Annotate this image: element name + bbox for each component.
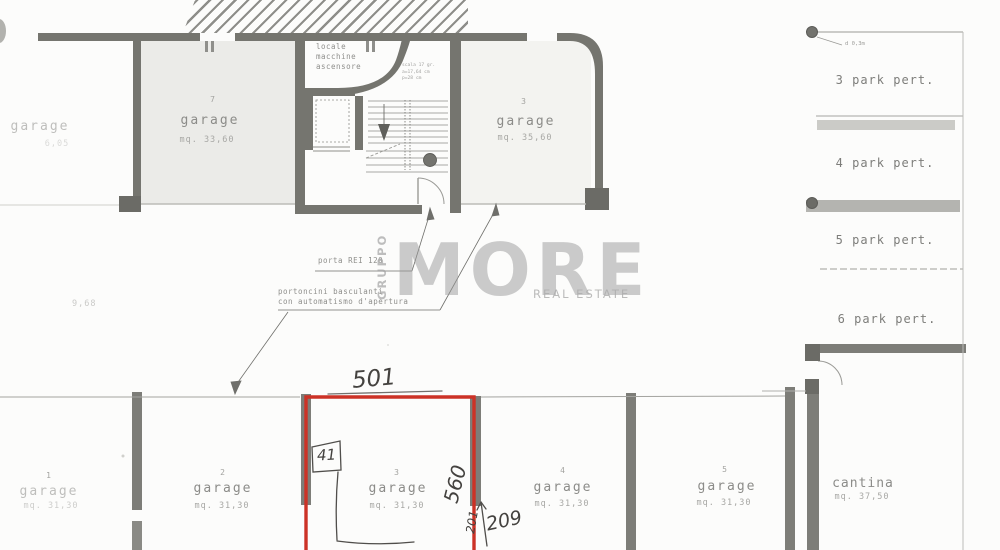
- garage-7-number: 7: [210, 95, 216, 104]
- garage-left-fragment-label: garage: [11, 119, 70, 134]
- garage-thresholds: [0, 204, 586, 205]
- park-slot-6: 6 park pert.: [838, 312, 937, 326]
- garage-5-number: 5: [722, 465, 728, 474]
- garage-7-label: garage: [181, 113, 240, 128]
- arrowhead: [427, 208, 434, 220]
- door-arc-cantina: [818, 361, 842, 385]
- handwriting-41: 41: [317, 446, 337, 465]
- garage-3-upper-number: 3: [521, 97, 527, 106]
- garage-4-label: garage: [534, 480, 593, 495]
- garage-3-number: 3: [394, 468, 400, 477]
- park-slot-5: 5 park pert.: [836, 233, 935, 247]
- garage-3-area: mq. 31,30: [369, 501, 424, 511]
- garage-3-upper-label: garage: [497, 114, 556, 129]
- portoncini-note: portoncini basculanti con automatismo d'…: [278, 287, 408, 307]
- porta-note: porta REI 120: [318, 256, 383, 266]
- arrowhead: [492, 204, 499, 216]
- cantina-label: cantina: [832, 476, 894, 491]
- park-slot-3: 3 park pert.: [836, 73, 935, 87]
- column: [807, 27, 818, 38]
- walls-lower: [132, 344, 966, 550]
- garage-5-area: mq. 31,30: [696, 498, 751, 508]
- garage-1-number: 1: [46, 471, 52, 480]
- column: [807, 198, 818, 209]
- cantina-area: mq. 37,50: [834, 492, 889, 502]
- garage-5-label: garage: [698, 479, 757, 494]
- garage-7-area: mq. 33,60: [179, 135, 234, 145]
- garage-4-area: mq. 31,30: [534, 499, 589, 509]
- handwriting-501: 501: [351, 364, 397, 394]
- elevator-shaft: [305, 96, 363, 151]
- machine-room-label: locale macchine ascensore: [316, 42, 361, 72]
- doors: [418, 178, 842, 385]
- garage-left-fragment-dim: 6,05: [45, 139, 69, 149]
- garage-2-label: garage: [194, 481, 253, 496]
- door-arc-stairwell: [418, 178, 444, 204]
- stair-note: scala 17 gr. a=17,64 cm p=28 cm: [402, 63, 435, 83]
- garage-1-label: garage: [20, 484, 79, 499]
- dim-968: 9,68: [72, 299, 96, 309]
- garage-3-upper-area: mq. 35,60: [497, 133, 552, 143]
- floor-plan-scan: garage 6,05 7 garage mq. 33,60 3 garage …: [0, 0, 1000, 550]
- column-diameter-note: d 0,3m: [845, 41, 865, 47]
- garage-2-area: mq. 31,30: [194, 501, 249, 511]
- park-slot-4: 4 park pert.: [836, 156, 935, 170]
- garage-4-number: 4: [560, 466, 566, 475]
- stair-direction-arrow: [378, 124, 390, 141]
- staircase: [366, 100, 448, 172]
- garage-2-number: 2: [220, 468, 226, 477]
- garage-3-label: garage: [369, 481, 428, 496]
- arrowhead: [231, 381, 241, 394]
- column: [424, 154, 437, 167]
- elevator-car-dashed: [316, 100, 349, 142]
- garage-1-area: mq. 31,30: [23, 501, 78, 511]
